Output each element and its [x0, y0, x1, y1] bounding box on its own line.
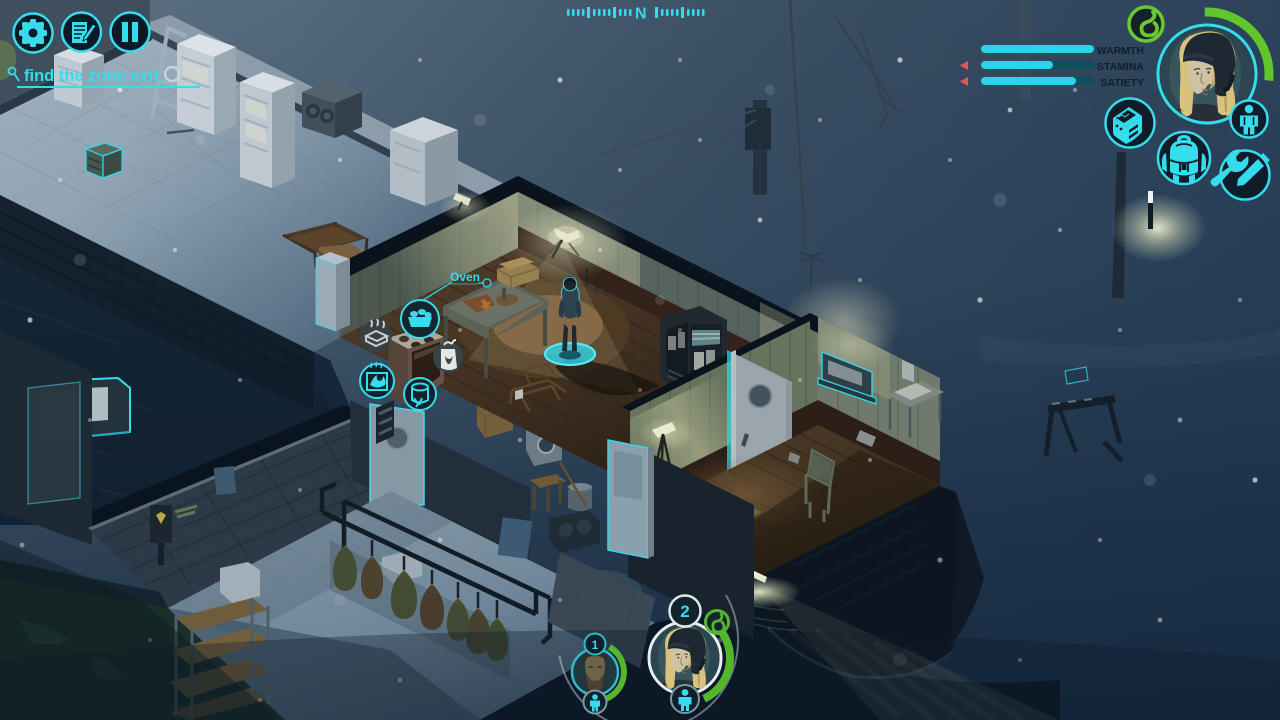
svg-text:1: 1: [592, 638, 599, 652]
svg-text:find the zone exit.: find the zone exit.: [24, 67, 163, 85]
svg-text:N: N: [635, 6, 647, 23]
svg-text:2: 2: [680, 602, 689, 621]
svg-text:STAMINA: STAMINA: [1097, 61, 1144, 73]
svg-text:SATIETY: SATIETY: [1100, 77, 1144, 89]
svg-text:Oven: Oven: [450, 270, 480, 284]
svg-text:WARMTH: WARMTH: [1097, 45, 1144, 57]
